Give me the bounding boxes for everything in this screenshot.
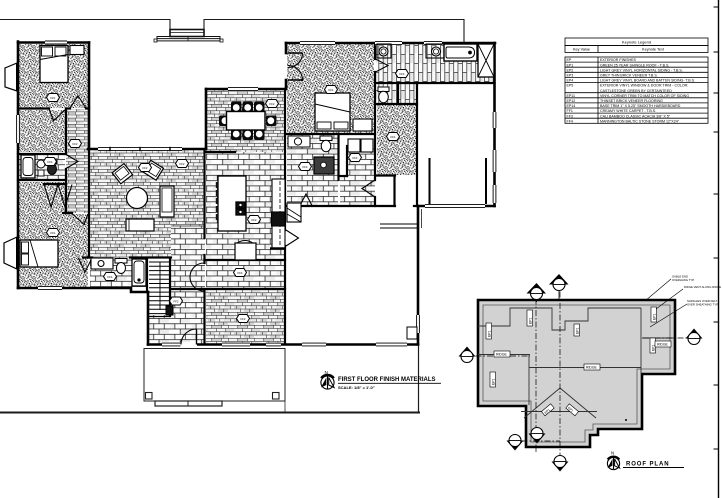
svg-text:OVERHANG TYP.: OVERHANG TYP. xyxy=(672,278,695,282)
svg-text:EXTERIOR FINISHES: EXTERIOR FINISHES xyxy=(600,58,637,62)
svg-text:Keynote Legend: Keynote Legend xyxy=(622,39,651,44)
svg-text:FF3: FF3 xyxy=(567,114,573,118)
svg-text:EP14: EP14 xyxy=(567,104,576,108)
svg-text:EP1: EP1 xyxy=(488,330,492,337)
svg-text:CALI BAMBOO CLASSIC ACACIA 3/8: CALI BAMBOO CLASSIC ACACIA 3/8" X 5" xyxy=(600,114,671,118)
svg-text:GREEN 25 YEAR SHINGLE ROOF - T: GREEN 25 YEAR SHINGLE ROOF - T.B.S. xyxy=(600,63,669,67)
svg-text:FF4: FF4 xyxy=(303,165,308,169)
svg-text:FF2: FF2 xyxy=(143,166,148,170)
svg-text:ROOF PLAN: ROOF PLAN xyxy=(626,462,669,468)
svg-text:FF2: FF2 xyxy=(73,142,78,146)
svg-text:FF1: FF1 xyxy=(51,96,56,100)
svg-text:Key Value: Key Value xyxy=(573,48,590,52)
svg-text:EP1: EP1 xyxy=(567,63,574,67)
svg-text:EP: EP xyxy=(567,58,572,62)
svg-text:EP1: EP1 xyxy=(576,327,580,334)
svg-text:FF2: FF2 xyxy=(180,162,185,166)
svg-text:LIGHT GREY VINYL HORIZONTAL SI: LIGHT GREY VINYL HORIZONTAL SIDING - T.B… xyxy=(600,68,683,72)
svg-text:EP1: EP1 xyxy=(529,317,533,324)
svg-text:FF2: FF2 xyxy=(270,102,275,106)
svg-text:MANNINGTON BALTIC STONE STORM: MANNINGTON BALTIC STONE STORM 12"X24" xyxy=(600,119,680,123)
svg-text:CREAMY WHITE CARPET - T.B.S.: CREAMY WHITE CARPET - T.B.S. xyxy=(600,109,656,113)
svg-text:FF4: FF4 xyxy=(108,275,113,279)
svg-text:VINYL CORNER TRIM TO MATCH COL: VINYL CORNER TRIM TO MATCH COLOR OF SIDI… xyxy=(600,94,689,98)
svg-text:EP2: EP2 xyxy=(567,68,574,72)
svg-text:EP5: EP5 xyxy=(567,84,574,88)
svg-text:N: N xyxy=(325,370,329,376)
svg-text:SCALE: 1/8" = 1'-0": SCALE: 1/8" = 1'-0" xyxy=(338,385,375,390)
svg-text:CASTLESTONE GREEN BY CERTAINTE: CASTLESTONE GREEN BY CERTAINTEED xyxy=(600,89,672,93)
svg-text:FF2: FF2 xyxy=(241,317,246,321)
svg-text:RIDGE: RIDGE xyxy=(586,366,597,370)
svg-text:N: N xyxy=(611,451,614,456)
svg-text:FF1: FF1 xyxy=(391,135,396,139)
svg-text:FF4: FF4 xyxy=(238,271,243,275)
svg-text:RIDGE VENT ALONG RIDGE: RIDGE VENT ALONG RIDGE xyxy=(684,285,721,289)
svg-text:FIRST FLOOR FINISH MATERIALS: FIRST FLOOR FINISH MATERIALS xyxy=(338,377,436,383)
svg-text:FF2: FF2 xyxy=(252,218,257,222)
svg-text:THINSET BRICK VENEER FLOORING: THINSET BRICK VENEER FLOORING xyxy=(600,99,663,103)
svg-text:FF1: FF1 xyxy=(51,231,56,235)
svg-text:FF4: FF4 xyxy=(48,160,53,164)
svg-text:LIGHT GREY VINYL BOARD AND BAT: LIGHT GREY VINYL BOARD AND BATTEN SIDING… xyxy=(600,79,695,83)
svg-text:FF1: FF1 xyxy=(329,88,334,92)
svg-text:FF4: FF4 xyxy=(400,72,405,76)
svg-text:FF2: FF2 xyxy=(174,300,179,304)
svg-text:FF1: FF1 xyxy=(567,109,573,113)
svg-text:EP1: EP1 xyxy=(653,313,657,320)
svg-text:EXTERIOR VINYL WINDOW & DOOR T: EXTERIOR VINYL WINDOW & DOOR TRIM - COLO… xyxy=(600,84,688,88)
svg-text:EP11: EP11 xyxy=(567,94,576,98)
svg-text:OVER SHEATHING TYP.: OVER SHEATHING TYP. xyxy=(687,303,719,307)
svg-text:RIDGE: RIDGE xyxy=(657,343,668,347)
svg-text:FF4: FF4 xyxy=(567,119,573,123)
svg-text:EP1: EP1 xyxy=(492,378,496,385)
svg-text:Keynote Text: Keynote Text xyxy=(642,48,665,52)
svg-text:BASE TRIM 1" X 5.25" SMOOTH HA: BASE TRIM 1" X 5.25" SMOOTH HARDIEBOARD xyxy=(600,104,681,108)
svg-text:RIDGE: RIDGE xyxy=(496,353,507,357)
svg-text:EP12: EP12 xyxy=(567,99,576,103)
svg-text:FF4: FF4 xyxy=(353,156,358,160)
svg-text:EP4: EP4 xyxy=(567,79,574,83)
svg-text:GREY THIN BRICK VENEER T.B.S.: GREY THIN BRICK VENEER T.B.S. xyxy=(600,74,658,78)
svg-text:EP3: EP3 xyxy=(567,74,574,78)
